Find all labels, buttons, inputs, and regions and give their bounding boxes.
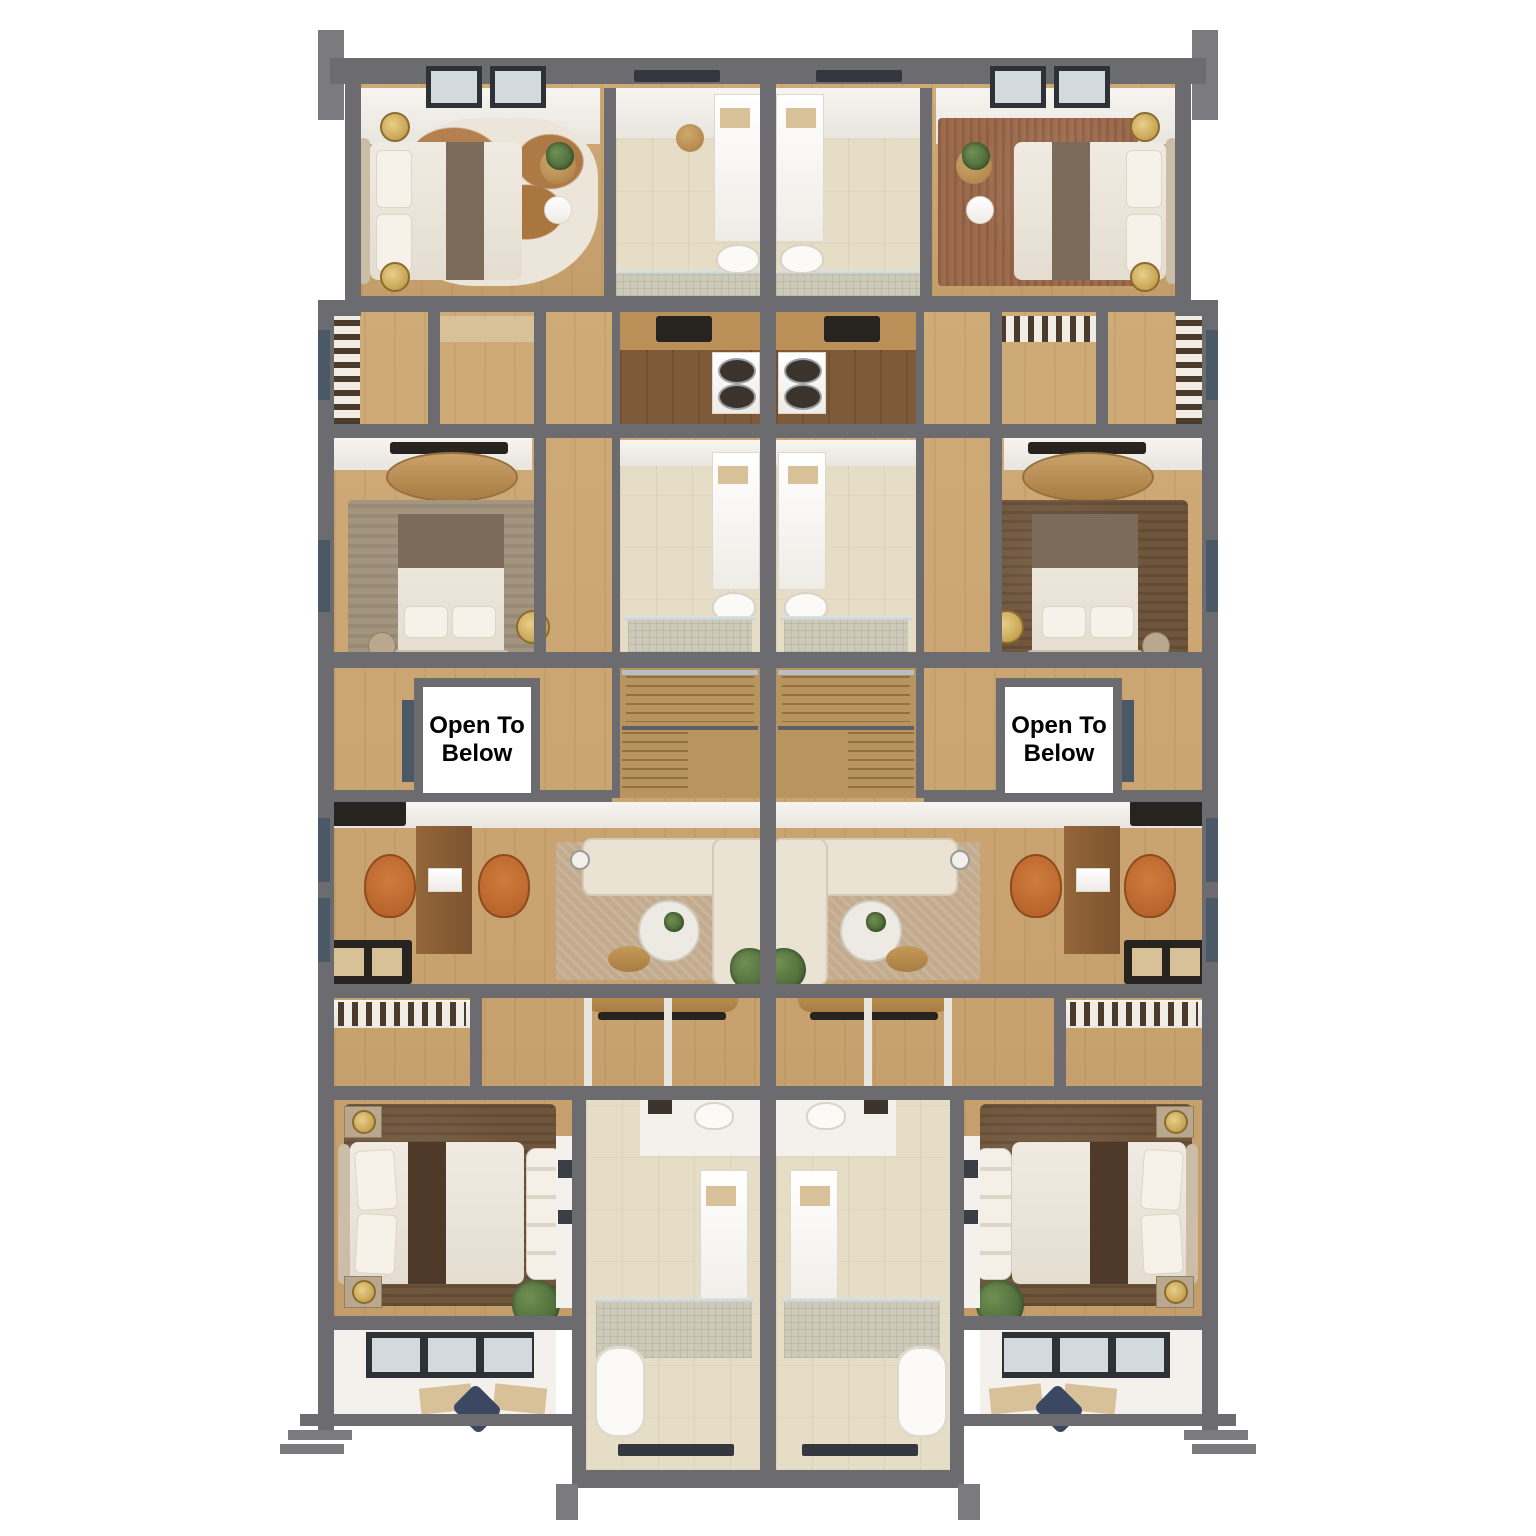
- window-office-l: [318, 818, 330, 882]
- bathroom-tr-shower-floor: [776, 274, 920, 296]
- bedroom-br-lamp: [1164, 1110, 1188, 1134]
- laundry-r-dryer-drum: [784, 384, 822, 410]
- staircase-left-lower-flight: [622, 732, 688, 794]
- floor-plan-canvas: Open To Below Open To Below: [0, 0, 1536, 1536]
- open-to-below-box-right: Open To Below: [996, 678, 1122, 802]
- bathroom-bl-appliance: [648, 1098, 672, 1114]
- bedroom-br-headboard: [1186, 1144, 1198, 1284]
- wall-row-e-left: [318, 790, 418, 802]
- closet-br2-rack: [1000, 316, 1096, 342]
- wall-bottom-bedroom-left: [318, 1316, 572, 1330]
- living-r-console-tray: [810, 1012, 938, 1020]
- wall-row-e-left2: [528, 790, 612, 802]
- party-wall-center: [760, 58, 776, 1478]
- office-r-laptop: [1076, 868, 1110, 892]
- bedroom-tr-lamp: [1130, 112, 1160, 142]
- window-office-l: [318, 898, 330, 962]
- bathroom-br-window: [802, 1444, 918, 1456]
- terrace-left-pane: [428, 1338, 476, 1372]
- staircase-right-upper-flight: [782, 676, 910, 722]
- laundry-l-appliance: [656, 316, 712, 342]
- outer-wall-bottom-center: [572, 1470, 964, 1488]
- office-l-chair: [364, 854, 416, 918]
- bathroom-tl-tray: [720, 108, 750, 128]
- window-office-r: [1206, 898, 1218, 962]
- bedroom-bl-pillow: [354, 1213, 397, 1275]
- wall-bath-tr-right: [920, 88, 932, 296]
- window-bedroom-ml: [318, 540, 330, 612]
- bedroom-tl-plant: [546, 142, 574, 170]
- bedroom-br-pillow: [1140, 1149, 1184, 1212]
- bathroom-tr-toilet: [780, 244, 824, 274]
- office-l-console: [330, 800, 406, 826]
- bedroom-tr-bed-throw: [1052, 142, 1090, 280]
- bedroom-mr-bed-throw: [1032, 514, 1138, 568]
- office-r-chair: [1124, 854, 1176, 918]
- window-closet-right: [1206, 330, 1218, 400]
- open-to-below-box-left: Open To Below: [414, 678, 540, 802]
- terrace-right-step: [1192, 1444, 1256, 1454]
- skylight-tr-glass: [995, 71, 1041, 103]
- office-l-shelf-box: [334, 948, 364, 976]
- wall-corridor-right: [990, 300, 1002, 652]
- bedroom-tr-lamp: [1130, 262, 1160, 292]
- open-to-below-right-window: [1122, 700, 1134, 782]
- outer-wall-right-upper: [1175, 58, 1191, 312]
- wall-closet-fr: [1054, 998, 1066, 1086]
- bedroom-tl-bed-throw: [446, 142, 484, 280]
- bathroom-bl-bathtub: [594, 1346, 646, 1438]
- bedroom-bl-headboard: [338, 1144, 350, 1284]
- hall-fr-partition: [864, 994, 872, 1086]
- laundry-r-appliance: [824, 316, 880, 342]
- open-to-below-left-window: [402, 700, 414, 782]
- terrace-right-railing: [962, 1414, 1236, 1426]
- parapet-bottom-center-right: [958, 1484, 980, 1520]
- bathroom-ml-shower-floor: [628, 620, 752, 652]
- bedroom-ml-bed-throw: [398, 514, 504, 568]
- laundry-l-dryer-drum: [718, 384, 756, 410]
- open-to-below-label-left: Open To Below: [423, 712, 531, 769]
- bathroom-br-tray: [800, 1186, 830, 1206]
- terrace-right-pane: [1060, 1338, 1108, 1372]
- living-l-table-plant: [664, 912, 684, 932]
- terrace-left-step: [288, 1430, 352, 1440]
- bathroom-tl-toilet: [716, 244, 760, 274]
- bathroom-tl-shower-floor: [616, 274, 760, 296]
- closet-bl2-shelf: [440, 316, 536, 342]
- closet-br1-wardrobe: [1176, 316, 1202, 424]
- bathroom-tl-basket: [676, 124, 704, 152]
- bedroom-tl-side-table-2: [544, 196, 572, 224]
- window-bath-tr: [816, 70, 902, 82]
- wall-row-e-right: [1118, 790, 1218, 802]
- laundry-l-washer-drum: [718, 358, 756, 384]
- window-closet-left: [318, 330, 330, 400]
- bedroom-bl-appliance: [558, 1210, 572, 1224]
- living-l-side-table: [608, 946, 650, 972]
- bathroom-br-appliance: [864, 1098, 888, 1114]
- wall-under-row-e: [318, 984, 1218, 998]
- living-l-console-tray: [598, 1012, 726, 1020]
- terrace-left-pane: [484, 1338, 532, 1372]
- office-r-chair: [1010, 854, 1062, 918]
- staircase-left-upper-flight: [626, 676, 754, 722]
- bathroom-br-sink: [806, 1102, 846, 1130]
- office-r-shelf-box: [1132, 948, 1162, 976]
- bedroom-bl-pillow: [354, 1149, 398, 1212]
- staircase-left-balustrade: [622, 670, 758, 675]
- living-r-floor-lamp: [950, 850, 970, 870]
- bathroom-mr-shower-floor: [784, 620, 908, 652]
- staircase-right-lower-flight: [848, 732, 914, 794]
- office-l-shelf-box: [372, 948, 402, 976]
- wall-core-right: [916, 300, 924, 798]
- wall-under-top-row: [345, 296, 1191, 312]
- closet-fr-clothes: [1070, 1002, 1198, 1026]
- wall-closet-divider-left: [428, 300, 440, 424]
- bedroom-bl-lamp: [352, 1280, 376, 1304]
- bathroom-bl-window: [618, 1444, 734, 1456]
- terrace-left-railing: [300, 1414, 574, 1426]
- bedroom-ml-pillow: [452, 606, 496, 638]
- bathroom-mr-tray: [788, 466, 818, 484]
- terrace-left-pane: [372, 1338, 420, 1372]
- wall-under-row-c: [318, 652, 1218, 668]
- terrace-left-desk: [493, 1383, 547, 1414]
- bathroom-bl-tray: [706, 1186, 736, 1206]
- wall-under-row-f: [318, 1086, 1218, 1100]
- bathroom-bl-sink: [694, 1102, 734, 1130]
- window-bedroom-mr: [1206, 540, 1218, 612]
- bedroom-tl-lamp: [380, 112, 410, 142]
- wall-bathroom-bl-left: [572, 1086, 586, 1484]
- bedroom-br-appliance: [964, 1210, 978, 1224]
- wall-corridor-left: [534, 300, 546, 652]
- office-l-laptop: [428, 868, 462, 892]
- bathroom-ml-tray: [718, 466, 748, 484]
- bedroom-bl-lamp: [352, 1110, 376, 1134]
- living-r-table-plant: [866, 912, 886, 932]
- skylight-tl-glass: [495, 71, 541, 103]
- bedroom-tr-side-table-2: [966, 196, 994, 224]
- bedroom-tr-plant: [962, 142, 990, 170]
- bathroom-tr-tray: [786, 108, 816, 128]
- bedroom-tl-lamp: [380, 262, 410, 292]
- wall-bath-tl-left: [604, 88, 616, 296]
- office-r-shelf-box: [1170, 948, 1200, 976]
- skylight-tl-glass: [431, 71, 477, 103]
- office-l-chair: [478, 854, 530, 918]
- office-r-console: [1130, 800, 1206, 826]
- bedroom-br-appliance: [964, 1160, 978, 1178]
- bedroom-tr-pillow: [1126, 150, 1162, 208]
- living-l-floor-lamp: [570, 850, 590, 870]
- bathroom-br-bathtub: [896, 1346, 948, 1438]
- staircase-right-balustrade: [778, 670, 914, 675]
- bedroom-bl-bed-runner: [408, 1142, 446, 1284]
- window-office-r: [1206, 818, 1218, 882]
- terrace-right-pane: [1004, 1338, 1052, 1372]
- parapet-bottom-center-left: [556, 1484, 578, 1520]
- wall-bottom-bedroom-right: [964, 1316, 1218, 1330]
- bedroom-br-pillow: [1140, 1213, 1183, 1275]
- laundry-r-washer-drum: [784, 358, 822, 384]
- outer-wall-left-upper: [345, 58, 361, 312]
- wall-closet-divider-right: [1096, 300, 1108, 424]
- terrace-left-step: [280, 1444, 344, 1454]
- bedroom-tl-pillow: [376, 150, 412, 208]
- wall-under-row-b: [318, 424, 1218, 438]
- bedroom-mr-pillow: [1090, 606, 1134, 638]
- bedroom-br-lamp: [1164, 1280, 1188, 1304]
- open-to-below-label-right: Open To Below: [1005, 712, 1113, 769]
- bedroom-br-bench: [976, 1148, 1012, 1280]
- staircase-right-railing: [778, 726, 914, 730]
- terrace-right-desk: [989, 1383, 1043, 1414]
- bedroom-ml-pillow: [404, 606, 448, 638]
- bedroom-bl-appliance: [558, 1160, 572, 1178]
- closet-bl1-wardrobe: [334, 316, 360, 424]
- living-r-side-table: [886, 946, 928, 972]
- hall-fl-partition: [664, 994, 672, 1086]
- bedroom-mr-pillow: [1042, 606, 1086, 638]
- terrace-right-pane: [1116, 1338, 1164, 1372]
- wall-core-left: [612, 300, 620, 798]
- bedroom-ml-console: [386, 452, 518, 502]
- wall-closet-fl: [470, 998, 482, 1086]
- terrace-right-step: [1184, 1430, 1248, 1440]
- bedroom-mr-console: [1022, 452, 1154, 502]
- skylight-tr-glass: [1059, 71, 1105, 103]
- closet-fl-clothes: [338, 1002, 466, 1026]
- hall-fr-partition: [944, 994, 952, 1086]
- window-bath-tl: [634, 70, 720, 82]
- hall-fl-partition: [584, 994, 592, 1086]
- bedroom-br-bed-runner: [1090, 1142, 1128, 1284]
- staircase-left-railing: [622, 726, 758, 730]
